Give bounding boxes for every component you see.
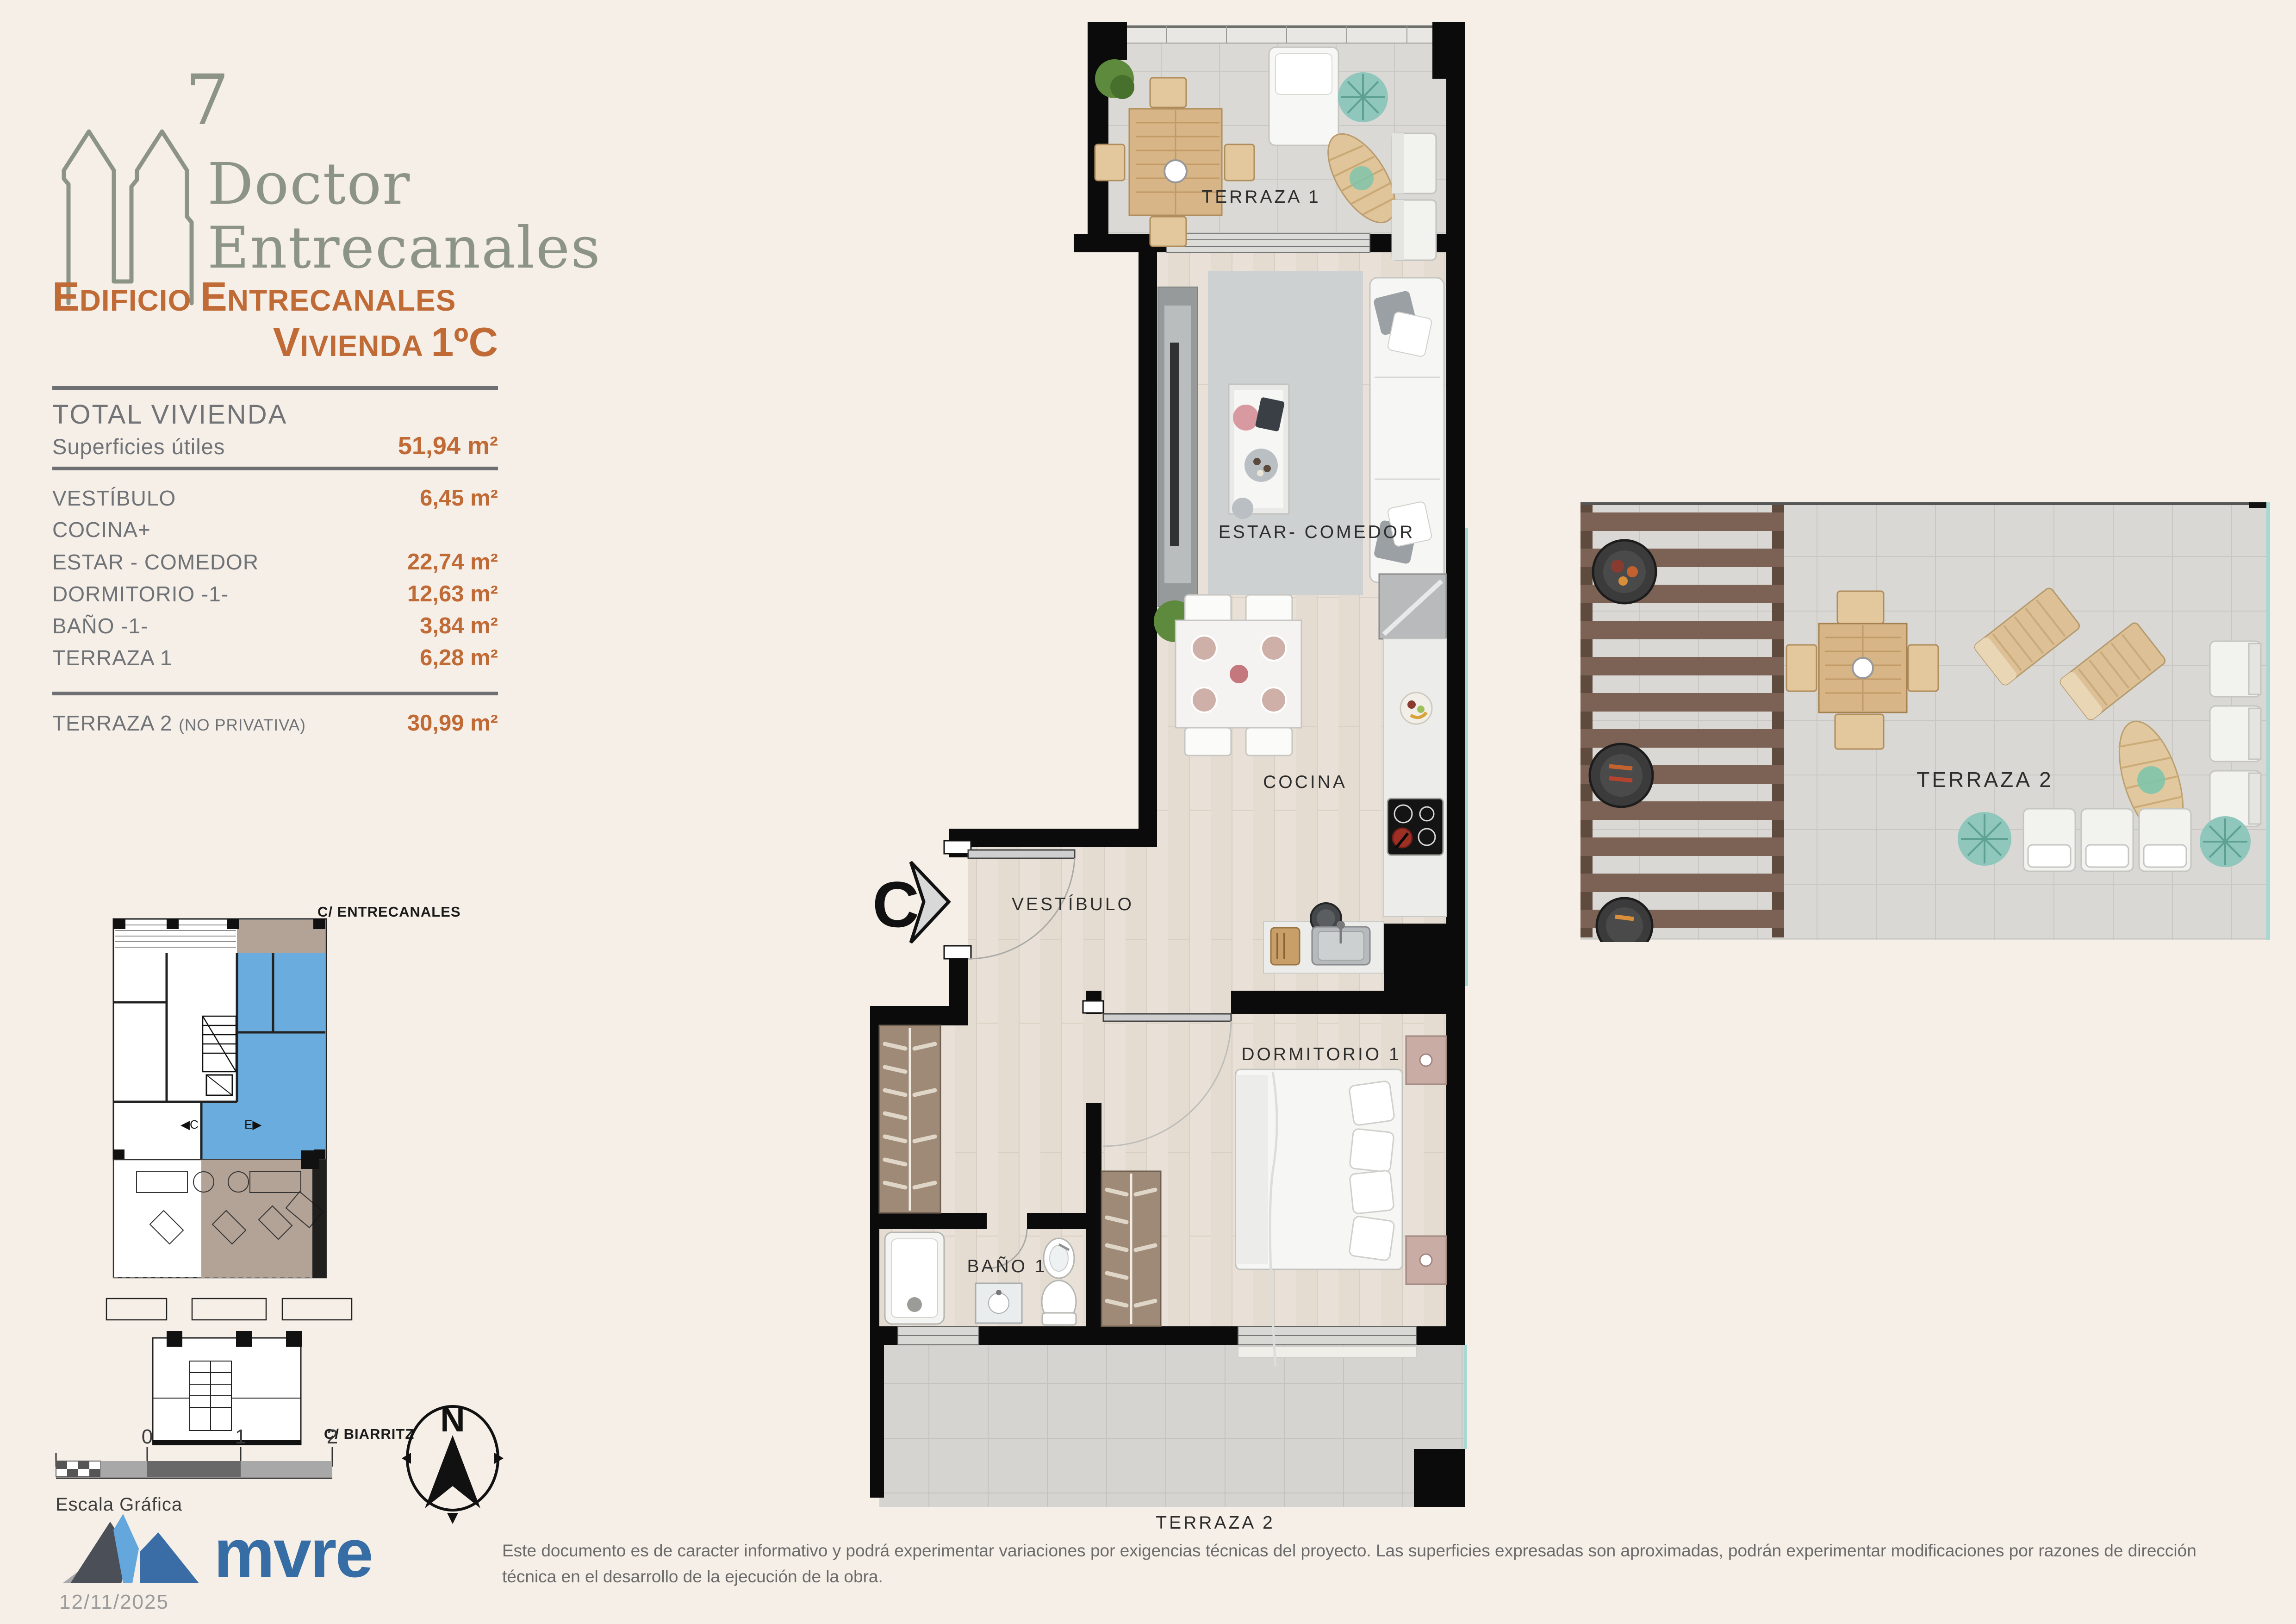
superficies-value: 51,94 m²	[398, 431, 498, 460]
armchair-row	[2023, 809, 2191, 871]
disclaimer-text: Este documento es de caracter informativ…	[502, 1538, 2247, 1589]
site-planters	[106, 1299, 352, 1320]
terraza2-row: TERRAZA 2 (NO PRIVATIVA) 30,99 m²	[52, 710, 498, 736]
table-row: TERRAZA 16,28 m²	[52, 645, 498, 677]
room-label-bano: BAÑO 1	[967, 1256, 1047, 1276]
logo-name-line2: Entrecanales	[207, 219, 601, 277]
room-label-vestibulo: VESTÍBULO	[1012, 894, 1134, 914]
table-row: VESTÍBULO6,45 m²	[52, 485, 498, 517]
room-label-cocina: COCINA	[1263, 772, 1347, 792]
scale-bar: 0 1 2	[46, 1417, 361, 1491]
mvre-logo-icon	[60, 1510, 208, 1589]
compass-icon: N	[393, 1389, 514, 1528]
building-title: EDIFICIO ENTRECANALES	[52, 273, 456, 320]
logo-number: 7	[185, 66, 229, 135]
street-label-entrecanales: C/ ENTRECANALES	[317, 904, 461, 920]
divider	[52, 467, 498, 470]
room-label-estar: ESTAR- COMEDOR	[1219, 522, 1415, 542]
table-row: DORMITORIO -1-12,63 m²	[52, 581, 498, 613]
unit-title: VIVIENDA 1ºC	[52, 319, 498, 366]
terraza1-railing	[1108, 25, 1446, 43]
svg-text:N: N	[440, 1400, 465, 1439]
room-label-terraza1: TERRAZA 1	[1201, 187, 1320, 207]
armchair-column	[2210, 641, 2261, 826]
table-row: BAÑO -1-3,84 m²	[52, 613, 498, 645]
logo-name-line1: Doctor	[207, 156, 411, 213]
room-label-dormitorio: DORMITORIO 1	[1241, 1044, 1401, 1064]
terrace-plan-label: TERRAZA 2	[1916, 768, 2053, 792]
superficies-label: Superficies útiles	[52, 434, 225, 459]
floorplan-sheet: 7 Doctor Entrecanales EDIFICIO ENTRECANA…	[0, 0, 2296, 1624]
svg-text:0: 0	[142, 1425, 153, 1448]
date-label: 12/11/2025	[59, 1591, 169, 1614]
superficies-row: Superficies útiles 51,94 m²	[52, 431, 498, 460]
mvre-wordmark: mvre	[214, 1519, 372, 1588]
terrace-plan: TERRAZA 2	[1580, 502, 2272, 942]
room-label-terraza2: TERRAZA 2	[1156, 1513, 1275, 1532]
terraza2-floor	[879, 1345, 1465, 1507]
site-marker-e: E▶	[244, 1118, 261, 1131]
svg-text:2: 2	[327, 1425, 338, 1448]
site-upper-block: ◀C E▶	[113, 919, 326, 1160]
main-floor-plan: C	[870, 19, 1468, 1532]
svg-text:1: 1	[235, 1425, 246, 1448]
divider	[52, 386, 498, 390]
surfaces-table: VESTÍBULO6,45 m² COCINA+ ESTAR - COMEDOR…	[52, 485, 498, 677]
entrance-letter: C	[872, 868, 919, 941]
table-row: COCINA+	[52, 517, 498, 549]
divider	[52, 692, 498, 695]
table-row: ESTAR - COMEDOR22,74 m²	[52, 549, 498, 581]
total-vivienda-label: TOTAL VIVIENDA	[52, 399, 287, 430]
site-terrace-band	[113, 1150, 326, 1278]
site-plan: ◀C E▶	[97, 893, 356, 1454]
site-marker-c: ◀C	[180, 1118, 199, 1131]
